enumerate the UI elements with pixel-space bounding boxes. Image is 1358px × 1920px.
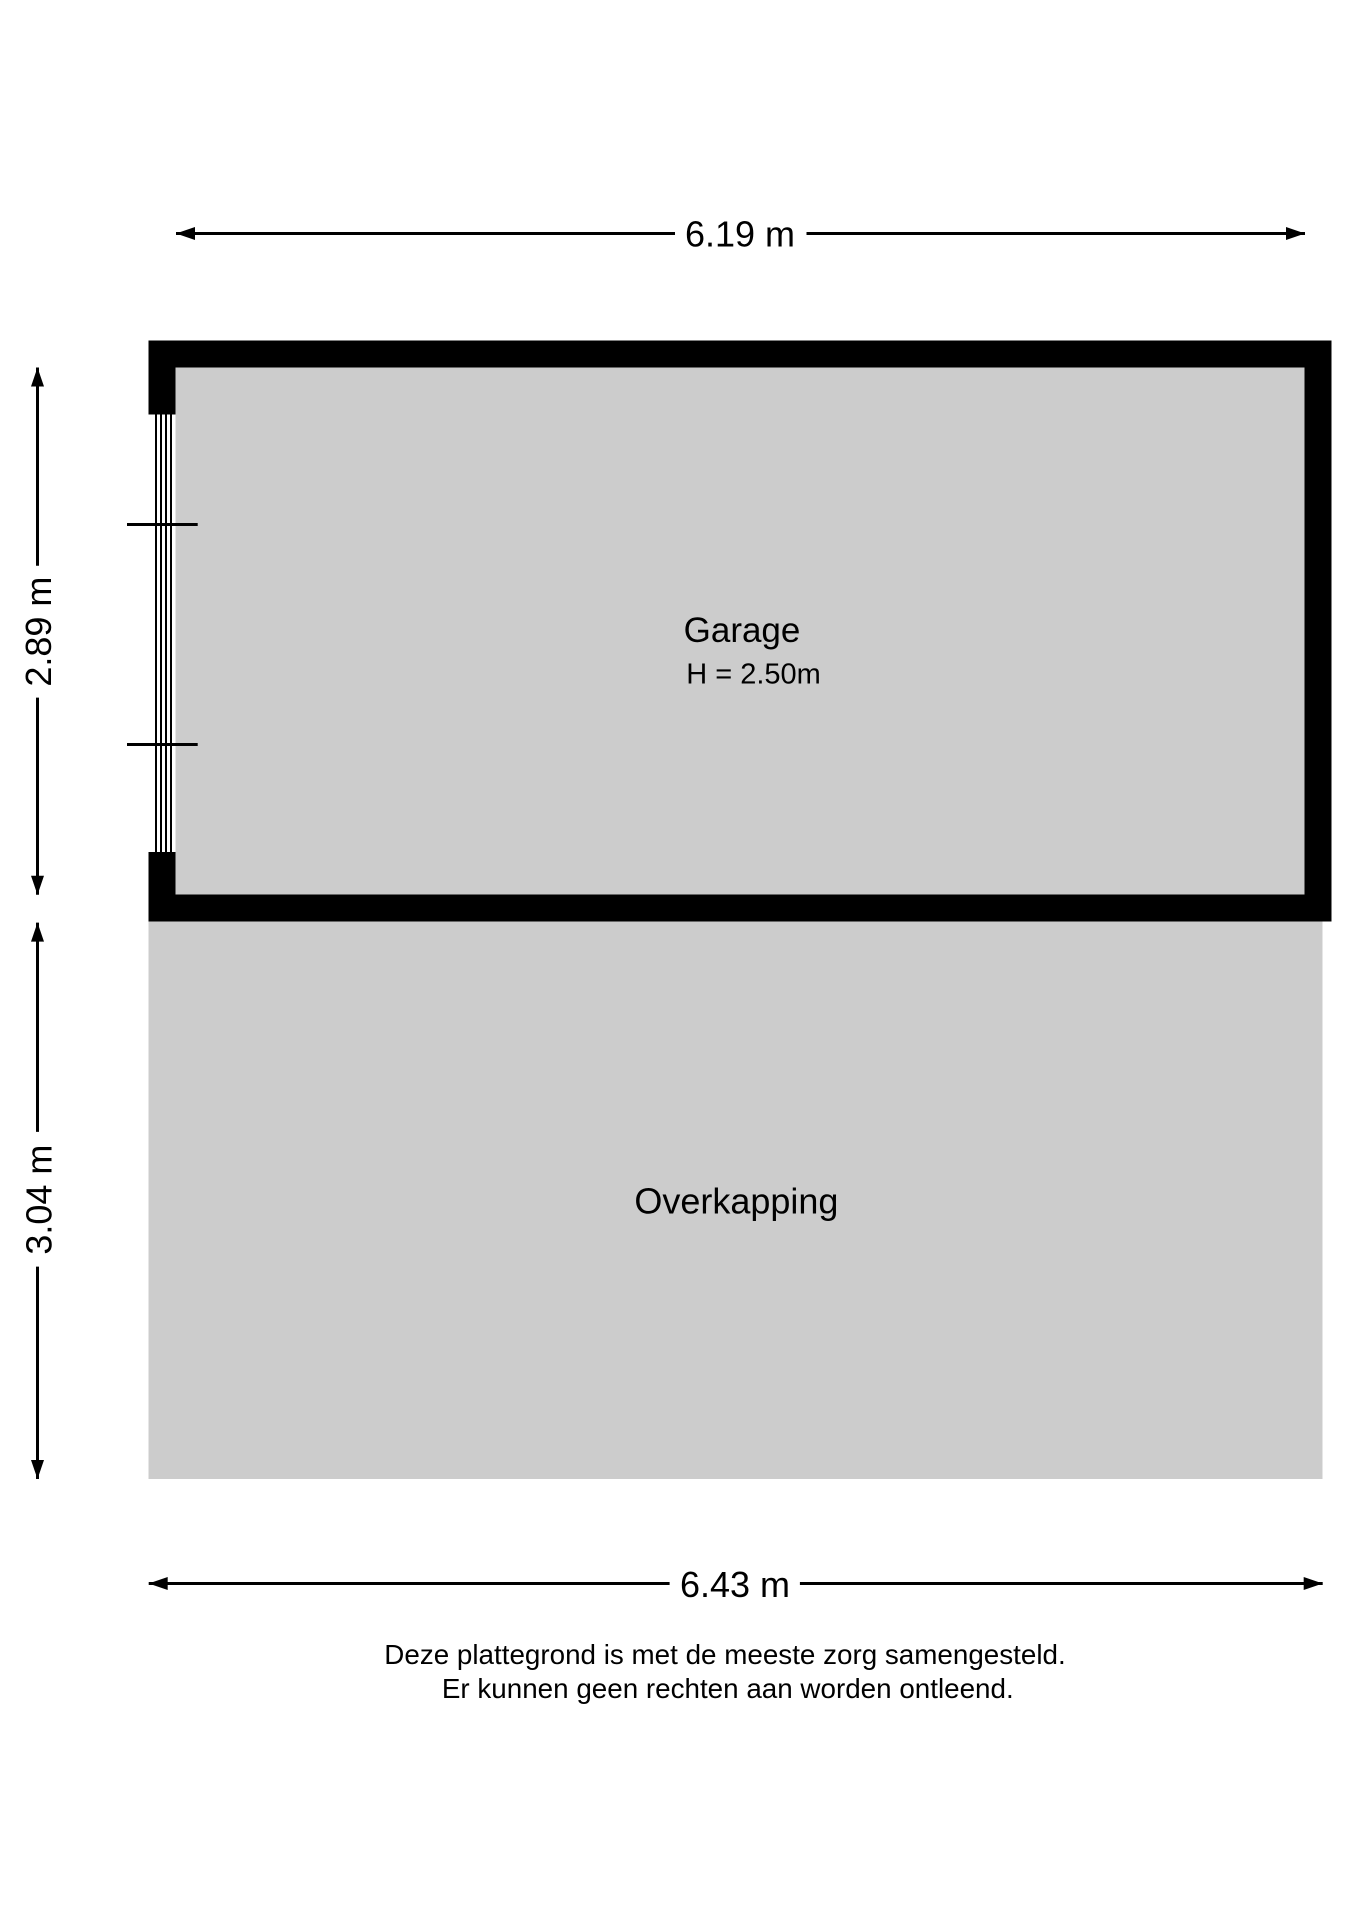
svg-text:3.04 m: 3.04 m [19, 1145, 60, 1255]
svg-text:Overkapping: Overkapping [634, 1180, 838, 1221]
svg-text:6.43 m: 6.43 m [680, 1564, 790, 1605]
svg-text:2.89 m: 2.89 m [18, 577, 59, 687]
svg-text:H = 2.50m: H = 2.50m [686, 659, 821, 691]
svg-text:Er kunnen geen rechten aan wor: Er kunnen geen rechten aan worden ontlee… [442, 1673, 1014, 1704]
svg-text:Deze plattegrond is met de mee: Deze plattegrond is met de meeste zorg s… [384, 1639, 1065, 1670]
svg-text:Garage: Garage [684, 611, 801, 650]
svg-text:6.19 m: 6.19 m [685, 214, 795, 255]
